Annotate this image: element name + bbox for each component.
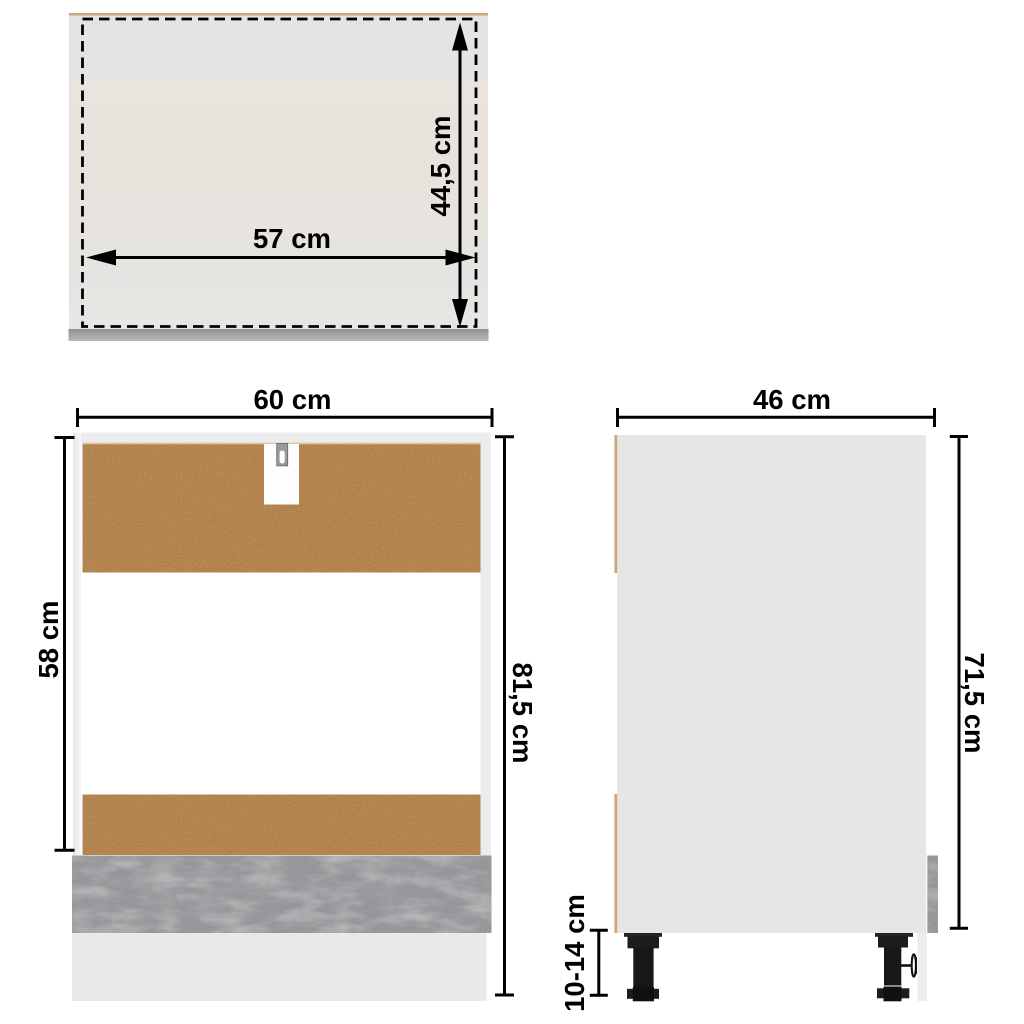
svg-text:57 cm: 57 cm	[253, 223, 331, 254]
svg-text:71,5 cm: 71,5 cm	[959, 653, 990, 754]
svg-text:60 cm: 60 cm	[254, 384, 332, 415]
svg-text:58 cm: 58 cm	[33, 601, 64, 679]
svg-text:81,5 cm: 81,5 cm	[507, 663, 538, 764]
svg-text:44,5 cm: 44,5 cm	[425, 116, 456, 217]
svg-text:10-14 cm: 10-14 cm	[559, 894, 590, 1012]
svg-text:46 cm: 46 cm	[753, 384, 831, 415]
